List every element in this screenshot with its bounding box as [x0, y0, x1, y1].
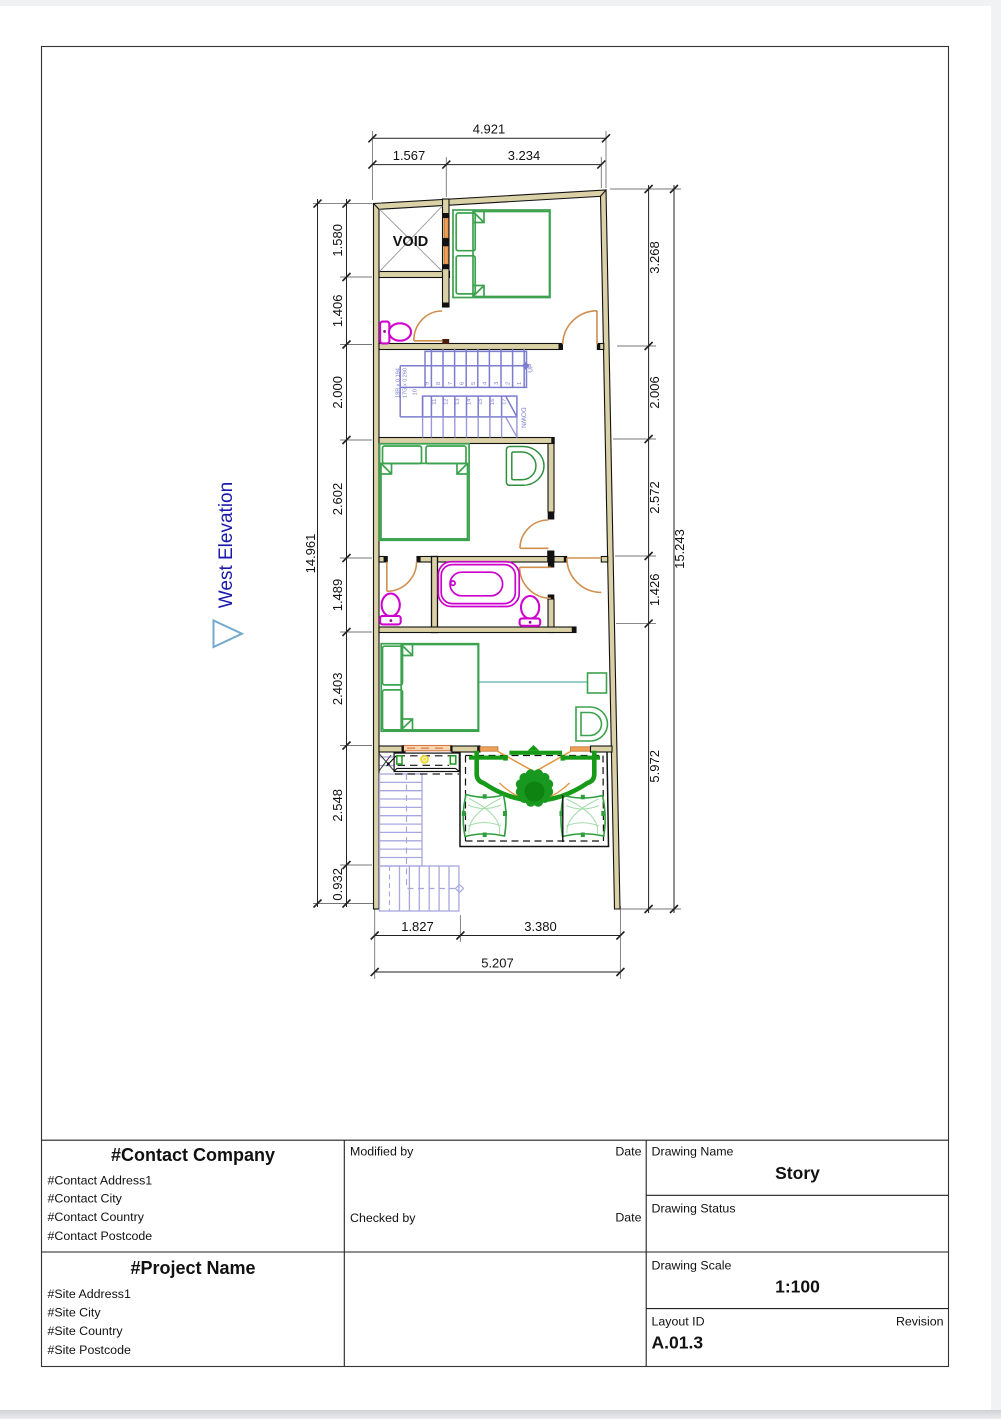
svg-text:Drawing Name: Drawing Name — [652, 1145, 734, 1159]
svg-text:13: 13 — [455, 398, 461, 404]
svg-text:1.567: 1.567 — [393, 148, 426, 163]
svg-text:7: 7 — [448, 382, 454, 385]
svg-text:14.961: 14.961 — [303, 534, 318, 574]
svg-text:#Contact Country: #Contact Country — [48, 1210, 145, 1224]
svg-text:16: 16 — [490, 398, 496, 404]
svg-text:Date: Date — [615, 1145, 641, 1159]
svg-text:8: 8 — [436, 382, 442, 385]
svg-text:Checked by: Checked by — [350, 1211, 416, 1225]
svg-text:Story: Story — [775, 1163, 820, 1183]
svg-text:1.827: 1.827 — [401, 919, 434, 934]
svg-text:4.921: 4.921 — [473, 122, 506, 137]
svg-text:Modified by: Modified by — [350, 1145, 414, 1159]
svg-text:14: 14 — [467, 398, 473, 405]
svg-text:17G x 0.260: 17G x 0.260 — [403, 368, 409, 398]
svg-text:#Contact Company: #Contact Company — [111, 1145, 275, 1165]
svg-text:#Site Postcode: #Site Postcode — [48, 1343, 131, 1357]
svg-text:1: 1 — [517, 382, 523, 385]
svg-text:1.489: 1.489 — [330, 579, 345, 612]
svg-text:11: 11 — [432, 399, 438, 405]
svg-text:VOID: VOID — [393, 234, 428, 250]
svg-text:Date: Date — [615, 1211, 641, 1225]
svg-text:0.932: 0.932 — [330, 868, 345, 901]
svg-text:1.580: 1.580 — [330, 224, 345, 257]
svg-text:15: 15 — [478, 398, 484, 404]
svg-text:Revision: Revision — [896, 1315, 944, 1329]
svg-text:#Contact City: #Contact City — [48, 1192, 123, 1206]
svg-text:2.602: 2.602 — [330, 483, 345, 516]
svg-text:2.572: 2.572 — [647, 481, 662, 514]
svg-text:1.426: 1.426 — [647, 574, 662, 607]
svg-text:DOWN: DOWN — [520, 407, 527, 428]
svg-text:#Site Address1: #Site Address1 — [48, 1287, 131, 1301]
svg-text:2.006: 2.006 — [647, 376, 662, 409]
svg-text:A.01.3: A.01.3 — [652, 1333, 704, 1353]
svg-text:3.234: 3.234 — [508, 148, 541, 163]
svg-text:15.243: 15.243 — [672, 529, 687, 569]
svg-text:6: 6 — [459, 382, 465, 385]
svg-text:#Site City: #Site City — [48, 1306, 102, 1320]
svg-text:2.548: 2.548 — [330, 789, 345, 822]
svg-text:1:100: 1:100 — [775, 1277, 820, 1297]
svg-text:Layout ID: Layout ID — [652, 1315, 705, 1329]
svg-text:10: 10 — [413, 389, 419, 395]
svg-text:1.406: 1.406 — [330, 295, 345, 328]
svg-text:Drawing Status: Drawing Status — [652, 1202, 736, 1216]
svg-text:Drawing Scale: Drawing Scale — [652, 1259, 732, 1273]
svg-text:#Contact Postcode: #Contact Postcode — [48, 1229, 153, 1243]
svg-text:9: 9 — [425, 382, 431, 385]
svg-text:12: 12 — [443, 398, 449, 404]
svg-text:3.380: 3.380 — [524, 919, 557, 934]
svg-text:17: 17 — [501, 398, 507, 404]
svg-text:#Site Country: #Site Country — [48, 1324, 124, 1338]
svg-text:3.268: 3.268 — [647, 241, 662, 274]
svg-text:#Project Name: #Project Name — [130, 1258, 255, 1278]
svg-text:5.207: 5.207 — [481, 956, 514, 971]
svg-text:2.403: 2.403 — [330, 673, 345, 706]
svg-text:West Elevation: West Elevation — [216, 482, 237, 608]
svg-text:2: 2 — [506, 382, 512, 385]
svg-text:18R x 0.194: 18R x 0.194 — [396, 368, 402, 398]
svg-text:#Contact Address1: #Contact Address1 — [48, 1173, 153, 1187]
svg-text:2.000: 2.000 — [330, 376, 345, 409]
svg-text:UP: UP — [528, 364, 535, 373]
svg-text:5.972: 5.972 — [647, 750, 662, 783]
svg-text:3: 3 — [494, 382, 500, 385]
svg-text:5: 5 — [471, 382, 477, 385]
